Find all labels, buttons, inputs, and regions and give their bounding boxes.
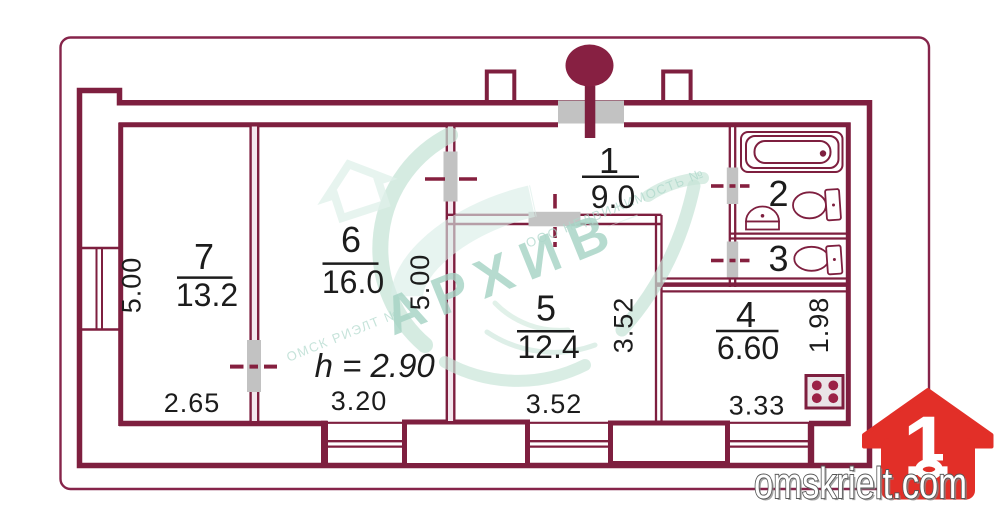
svg-text:6: 6	[341, 219, 361, 260]
svg-text:4: 4	[736, 294, 756, 335]
svg-text:omskrielt.com: omskrielt.com	[754, 459, 967, 508]
svg-text:9.0: 9.0	[591, 179, 635, 215]
svg-text:5: 5	[536, 288, 556, 329]
svg-text:3: 3	[768, 238, 788, 279]
svg-text:3.20: 3.20	[331, 386, 388, 416]
svg-text:1: 1	[599, 140, 619, 181]
svg-text:13.2: 13.2	[176, 277, 238, 313]
svg-text:7: 7	[194, 236, 214, 277]
svg-text:16.0: 16.0	[322, 264, 384, 300]
svg-text:h = 2.90: h = 2.90	[315, 347, 436, 384]
svg-text:12.4: 12.4	[517, 329, 579, 365]
svg-text:2.65: 2.65	[164, 388, 221, 418]
svg-text:2: 2	[768, 173, 788, 214]
svg-text:3.52: 3.52	[609, 297, 639, 354]
svg-text:5.00: 5.00	[405, 254, 435, 311]
svg-text:3.52: 3.52	[526, 389, 583, 419]
svg-text:5.00: 5.00	[117, 257, 147, 314]
svg-text:1.98: 1.98	[804, 297, 834, 354]
svg-text:6.60: 6.60	[717, 330, 779, 366]
svg-text:3.33: 3.33	[729, 391, 786, 421]
